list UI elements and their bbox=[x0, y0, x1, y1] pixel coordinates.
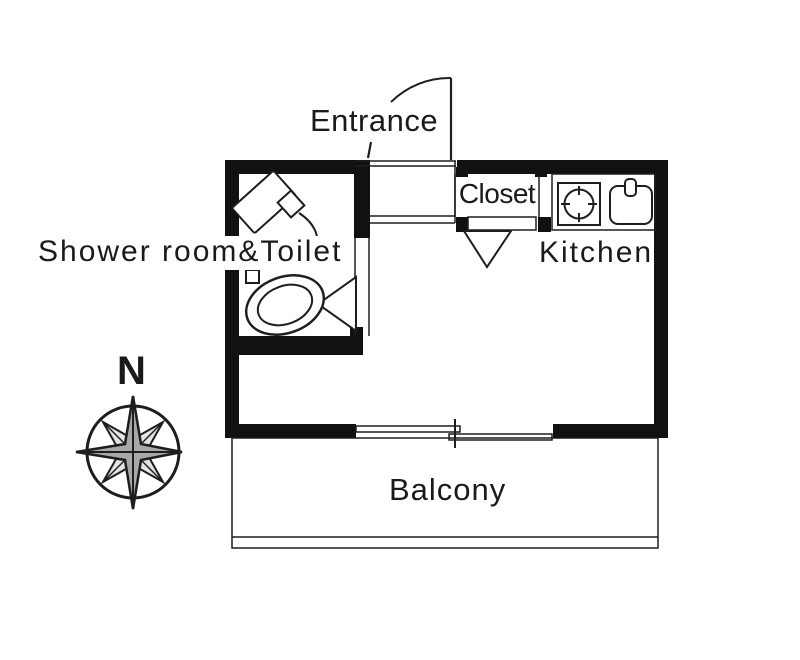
compass-rose-icon bbox=[76, 396, 182, 509]
floor-plan-canvas bbox=[0, 0, 800, 660]
entrance-label: Entrance bbox=[310, 105, 438, 138]
balcony-label: Balcony bbox=[389, 474, 506, 507]
compass-north-label: N bbox=[92, 350, 172, 392]
kitchen-sink-icon bbox=[610, 179, 652, 224]
entrance-vestibule bbox=[356, 161, 456, 223]
sliding-door-icon bbox=[356, 419, 552, 448]
closet-label: Closet bbox=[454, 179, 540, 208]
toilet-icon bbox=[238, 265, 332, 345]
door-triangle-icon bbox=[464, 231, 511, 267]
kitchen-label: Kitchen bbox=[539, 237, 653, 269]
stove-burner-icon bbox=[558, 183, 600, 225]
floor-plan-page: Entrance Closet Kitchen Shower room&Toil… bbox=[0, 0, 800, 660]
kitchen-counter bbox=[552, 174, 655, 230]
shower-room-toilet-label: Shower room&Toilet bbox=[36, 236, 345, 270]
